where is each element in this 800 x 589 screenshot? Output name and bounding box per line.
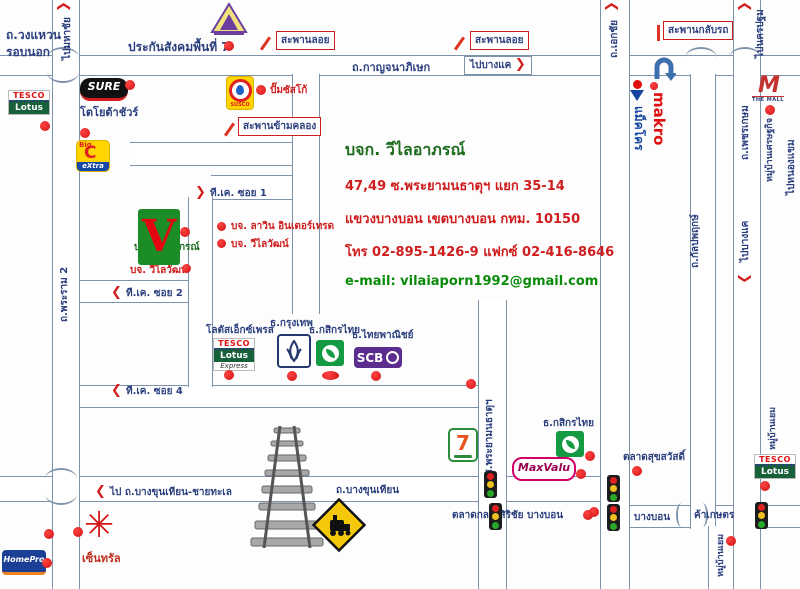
location-dot [73,527,83,537]
location-dot [44,529,54,539]
seven-text: 7 [450,430,476,456]
canal-bridge-label: สะพานข้ามคลอง [238,117,321,136]
susco-text: SUSCO [227,102,253,108]
susco-ring-icon [229,79,252,102]
arrow-up-icon: ❯ [605,1,618,12]
lotus-text: Lotus [214,348,254,362]
dir-sea-label: ไป ถ.บางขุนเทียน-ชายทะเล [110,485,232,500]
info-company-name: บจก. วีไลอาภรณ์ [345,138,614,163]
uturn-bridge-label: สะพานกลับรถ [663,21,733,40]
bangbon-location-map: ❯ ไปมหาชัย ถ.วงแหวน รอบนอก ถ.พระราม 2 ปร… [0,0,800,589]
traffic-light-icon [489,503,502,530]
makro-logo-text: makro [650,92,668,145]
arrow-right-icon: ❯ [195,186,206,199]
info-phone-fax: โทร 02-895-1426-9 แฟกซ์ 02-416-8646 [345,241,614,262]
bigc-c-text: C [84,143,96,163]
lotus-express-label: โลตัสเอ็กซ์เพรส [206,323,274,338]
kbank-circle-icon [322,345,339,362]
the-mall-m: M [752,76,784,96]
scb-text: SCB [357,351,384,365]
location-dot [760,481,770,491]
location-dot [585,451,595,461]
scb-label: ธ.ไทยพาณิชย์ [352,328,414,343]
dir-bangkhae-down: ไปบางแค [738,221,753,262]
arrow-right-icon: ❯ [515,57,526,72]
kbank-label-2: ธ.กสิกรไทย [543,416,594,431]
tesco-lotus-logo: TESCO Lotus [8,90,50,115]
bangkok-bank-label: ธ.กรุงเทพ [270,316,313,331]
overpass-arc [676,503,687,527]
location-dot [632,466,642,476]
road-label-phrayamonthat: ซ.พระยามนธาตุฯ [482,399,497,476]
train-crossing-sign-icon [308,494,370,560]
location-dot [180,227,190,237]
dir-mahachai: ไปมหาชัย [60,17,75,60]
bigc-extra-text: eXtra [77,162,109,171]
makro-thai-text: แม็คโคร [629,106,648,151]
arrow-up-icon: ❯ [57,1,70,12]
tk-soi1-label: ที.เค. ซอย 1 [210,186,267,201]
dir-bangkhae-box: ไปบางแค ❯ [464,56,532,75]
seven-green-stripe [454,455,472,458]
tesco-text: TESCO [214,339,254,348]
kbank-logo [316,340,344,366]
lotus-text: Lotus [9,100,49,114]
bridge-slash-icon [224,122,235,136]
lotus-emblem-icon [284,340,304,362]
dir-bangkhae-label: ไปบางแค [470,60,511,71]
arrow-left-icon: ❮ [111,384,122,397]
makro-icon [628,80,646,102]
pedestrian-bridge-label-1: สะพานลอย [276,31,335,50]
lawin-label: บจ. ลาวิน อินเตอร์เทรด [231,219,334,234]
location-dot [217,239,226,248]
kbank-circle-icon [562,436,579,453]
dir-nakhonpathom: ไปนครปฐม [753,9,768,58]
tk-soi2-label: ที.เค. ซอย 2 [126,286,183,301]
info-address-1: 47,49 ซ.พระยามนธาตุฯ แยก 35-14 [345,175,614,196]
location-dot [371,371,381,381]
road-canal-branch [130,142,318,166]
bridge-slash-icon [260,36,271,50]
location-dot [466,379,476,389]
susco-label: ปั๊มซัสโก้ [270,83,307,98]
central-flower-icon: ✳ [84,508,114,544]
toyota-sure-label: โตโยต้าชัวร์ [80,103,138,121]
tesco-text: TESCO [755,455,795,464]
scb-circle-icon [386,351,399,364]
central-label: เซ็นทรัล [82,549,121,567]
susco-logo: SUSCO [226,76,254,110]
bridge-slash-icon [454,36,465,50]
bangkok-bank-logo [277,334,311,368]
ringroad-label-2: รอบนอก [6,43,50,62]
arrow-left-icon: ❮ [95,485,106,498]
location-dot [726,536,736,546]
arrow-down-icon: ❯ [738,273,751,284]
location-dot [42,558,52,568]
arrow-left-icon: ❮ [111,286,122,299]
homepro-text: HomePro [3,555,44,564]
kakaset-label: ค้าเกษตร [694,508,734,523]
road-label-rama2: ถ.พระราม 2 [57,267,72,322]
homepro-logo: HomePro [2,550,46,575]
location-dot [182,264,191,273]
traffic-light-icon [607,475,620,502]
road-kalpapruek [690,74,716,529]
social-security-label: ประกันสังคมพื้นที่ 7 [128,38,230,57]
arrow-up-icon: ❯ [738,1,751,12]
lotus-text: Lotus [755,464,795,478]
location-dot [322,371,339,380]
village-label-2: หมู่บ้านเยม [765,407,779,450]
road-label-kanchanaphisek: ถ.กาญจนาภิเษก [352,58,430,76]
tesco-lotus-express-logo: TESCO Lotus Express [213,338,255,371]
overpass-arc [685,47,717,58]
info-address-2: แขวงบางบอน เขตบางบอน กทม. 10150 [345,208,614,229]
location-dot [217,222,226,231]
the-mall-logo: M THE MALL [752,76,784,103]
location-dot [256,85,266,95]
tesco-lotus-logo-right: TESCO Lotus [754,454,796,479]
v-letter: V [142,211,176,262]
road-canal-soi [292,74,320,314]
location-dot [80,128,90,138]
info-email: e-mail: vilaiaporn1992@gmail.com [345,274,614,289]
tk-soi4-label: ที.เค. ซอย 4 [126,384,183,399]
u-turn-icon [652,53,676,85]
kbank-sprout-icon [566,440,575,449]
road-label-bangbon: บางบอน [634,510,670,525]
location-dot [125,80,135,90]
road-label-kalpapruek: ถ.กัลปพฤกษ์ [688,214,703,268]
kbank-logo-2 [556,431,584,457]
seven-eleven-logo: 7 [448,428,478,462]
susco-drop-icon [236,85,244,95]
maxvalu-text: MaxValu [518,461,570,474]
suksawat-market-label: ตลาดสุขสวัสดิ์ [623,450,685,465]
maxvalu-logo: MaxValu [512,457,576,481]
the-mall-text: THE MALL [752,96,784,103]
location-dot [224,41,234,51]
vilaiwat-label-1: บจ. วีไลวัฒน์ [231,237,289,252]
uturn-tick-icon [657,25,660,41]
social-security-pyramid-icon [210,2,248,40]
scb-logo: SCB [354,347,402,368]
location-dot [576,469,586,479]
vilai-aporn-logo: V [138,209,180,265]
road-tk-main [188,197,213,387]
location-dot [583,510,593,520]
dir-nongkhaem: ไปหนองแขม [784,139,799,195]
tesco-text: TESCO [9,91,49,100]
express-text: Express [214,362,254,370]
pedestrian-bridge-label-2: สะพานลอย [470,31,529,50]
location-dot [40,121,50,131]
company-info-block: บจก. วีไลอาภรณ์ 47,49 ซ.พระยามนธาตุฯ แยก… [345,138,614,289]
toyota-sure-logo: SURE [80,78,128,101]
vilaiwat-label-2: บจ. วีไลวัฒน์ [130,263,188,278]
road-label-ekachai: ถ.เอกชัย [607,20,622,58]
traffic-light-icon [607,504,620,531]
sethakit-village-label: หมู่บ้านเศรษฐกิจ [762,118,776,182]
kbank-sprout-icon [326,349,335,358]
road-label-phetkasem: ถ.เพชรเกษม [738,105,753,160]
sure-text: SURE [88,80,121,93]
location-dot [224,370,234,380]
village-label-1: หมู่บ้านเยม [713,534,727,577]
location-dot [287,371,297,381]
location-dot [765,105,775,115]
bigc-extra-logo: Big C eXtra [76,140,110,172]
traffic-light-icon [755,502,768,529]
traffic-light-icon [484,471,497,498]
sirichai-market-label: ตลาดกลางสิริชัย บางบอน [452,508,563,523]
location-dot [650,82,658,90]
